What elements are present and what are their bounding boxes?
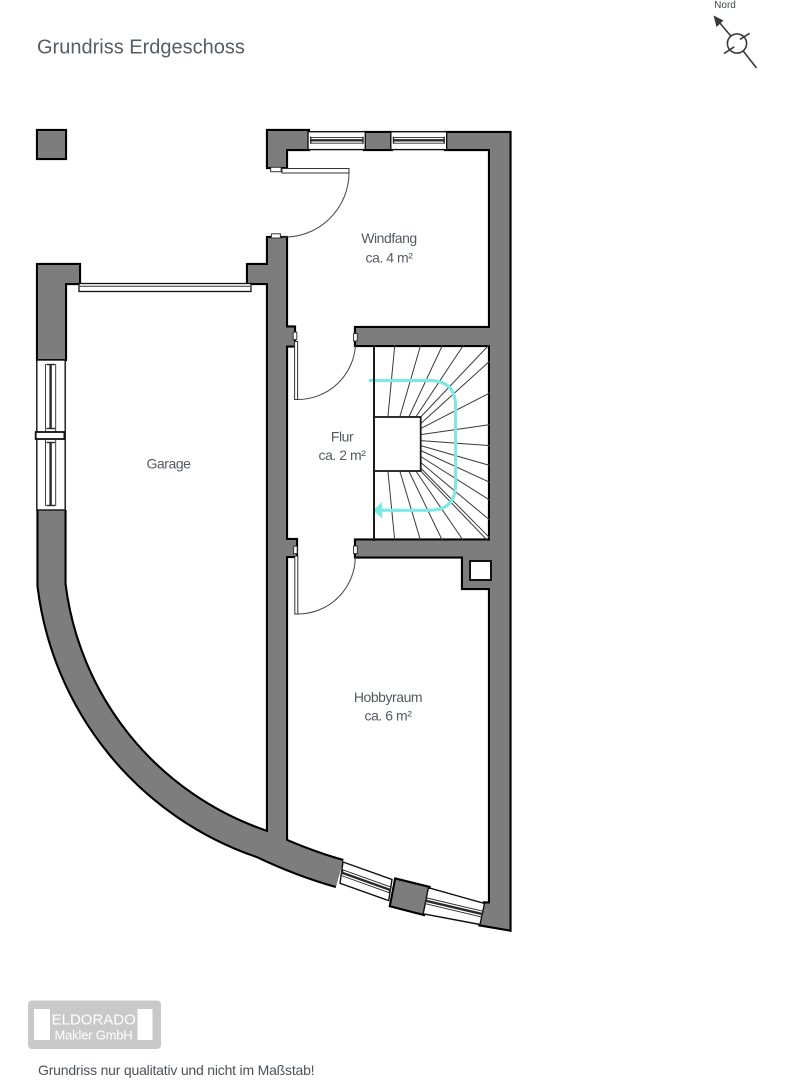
svg-text:ca. 6 m²: ca. 6 m² bbox=[365, 708, 413, 724]
svg-text:ca. 2 m²: ca. 2 m² bbox=[319, 447, 367, 463]
svg-text:ca. 4 m²: ca. 4 m² bbox=[366, 250, 414, 266]
svg-text:Grundriss nur qualitativ und n: Grundriss nur qualitativ und nicht im Ma… bbox=[38, 1062, 314, 1078]
svg-text:Hobbyraum: Hobbyraum bbox=[354, 689, 422, 705]
svg-text:Makler GmbH: Makler GmbH bbox=[55, 1028, 133, 1043]
svg-text:Grundriss Erdgeschoss: Grundriss Erdgeschoss bbox=[37, 37, 245, 59]
svg-text:Windfang: Windfang bbox=[361, 230, 417, 246]
svg-text:Flur: Flur bbox=[331, 429, 354, 445]
svg-text:Garage: Garage bbox=[147, 456, 192, 472]
svg-text:Nord: Nord bbox=[714, 0, 736, 11]
svg-text:ELDORADO: ELDORADO bbox=[52, 1012, 136, 1029]
